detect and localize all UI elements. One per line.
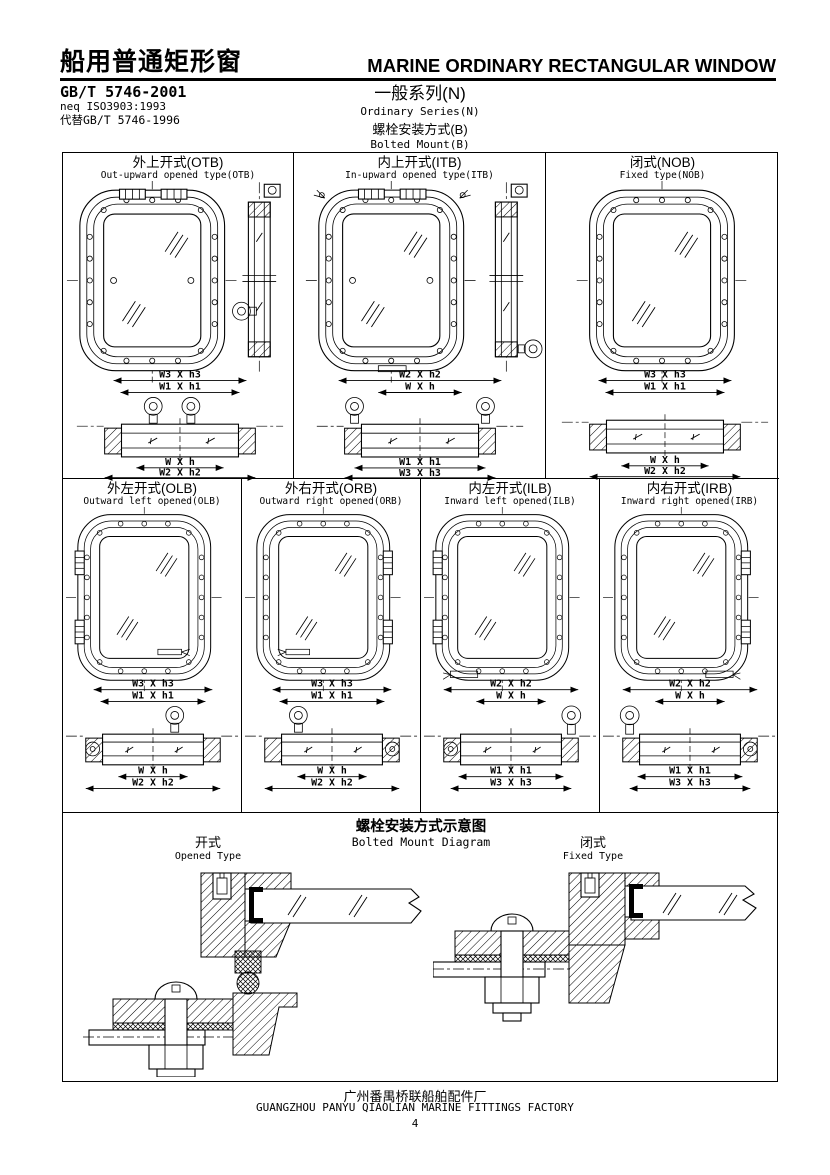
opened-type-label-cn: 开式 [133,835,283,851]
svg-text:W X h: W X h [650,455,680,466]
svg-text:W3 X h3: W3 X h3 [399,468,441,479]
otb-side-section [232,182,280,374]
cell-nob: 闭式(NOB) Fixed type(NOB) W3 X h3 W1 X h1 … [546,153,779,479]
svg-text:W2 X h2: W2 X h2 [399,370,441,381]
svg-text:W2 X h2: W2 X h2 [132,778,174,789]
footer-factory-en: GUANGZHOU PANYU QIAOLIAN MARINE FITTINGS… [0,1101,830,1114]
svg-text:W2 X h2: W2 X h2 [311,778,353,789]
cell-irb-title-cn: 内右开式(IRB) [600,481,779,496]
cell-otb: 外上开式(OTB) Out-upward opened type(OTB) [63,153,294,479]
diagram-title-cn: 螺栓安装方式示意图 [63,819,779,836]
cell-orb-title-en: Outward right opened(ORB) [242,496,420,507]
svg-text:W1 X h1: W1 X h1 [669,766,711,777]
opened-type-section-drawing [83,859,433,1077]
cell-ilb-header: 内左开式(ILB) Inward left opened(ILB) [421,479,599,507]
standard-replaces: 代替GB/T 5746-1996 [60,112,180,128]
cell-itb-title-en: In-upward opened type(ITB) [294,170,545,181]
svg-text:W X h: W X h [165,457,195,468]
svg-text:W X h: W X h [405,382,435,393]
standard-number: GB/T 5746-2001 [60,83,186,101]
svg-text:W X h: W X h [496,691,526,702]
mount-title-en: Bolted Mount(B) [270,138,570,151]
cell-itb: 内上开式(ITB) In-upward opened type(ITB) [294,153,546,479]
header-rule [60,78,776,81]
cell-nob-header: 闭式(NOB) Fixed type(NOB) [546,153,779,181]
cell-nob-title-en: Fixed type(NOB) [546,170,779,181]
fixed-type-section-drawing [433,859,763,1077]
cell-orb-title-cn: 外右开式(ORB) [242,481,420,496]
cell-irb: 内右开式(IRB) Inward right opened(IRB) W2 X … [600,479,779,813]
orb-drawing: W3 X h3 W1 X h1 W X h W2 X h2 [243,507,420,813]
cell-otb-title-en: Out-upward opened type(OTB) [63,170,293,181]
itb-front-view [305,181,476,383]
otb-front-view [66,181,237,383]
olb-drawing: W3 X h3 W1 X h1 W X h W2 X h2 [64,507,241,813]
series-title-en: Ordinary Series(N) [270,104,570,119]
orb-cross-section: W3 X h3 W1 X h1 W X h W2 X h2 [244,679,418,789]
cell-orb-header: 外右开式(ORB) Outward right opened(ORB) [242,479,420,507]
svg-text:W X h: W X h [675,691,705,702]
cell-olb-header: 外左开式(OLB) Outward left opened(OLB) [63,479,241,507]
cell-olb-title-en: Outward left opened(OLB) [63,496,241,507]
svg-text:W2 X h2: W2 X h2 [669,679,711,690]
drawing-table: 外上开式(OTB) Out-upward opened type(OTB) [62,152,778,1082]
svg-text:W1 X h1: W1 X h1 [159,381,201,392]
cell-irb-header: 内右开式(IRB) Inward right opened(IRB) [600,479,779,507]
svg-text:W2 X h2: W2 X h2 [644,466,686,477]
nob-cross-section: W3 X h3 W1 X h1 W X h W2 X h2 [562,370,768,477]
ilb-cross-section: W2 X h2 W X h W1 X h1 W3 X h3 [423,679,597,789]
svg-text:W3 X h3: W3 X h3 [132,679,174,690]
itb-drawing: W2 X h2 W X h W1 X h1 W3 X h3 [295,181,545,481]
svg-text:W1 X h1: W1 X h1 [132,691,174,702]
nob-front-view [577,181,748,383]
itb-cross-section: W2 X h2 W X h W1 X h1 W3 X h3 [316,370,522,479]
cell-ilb: 内左开式(ILB) Inward left opened(ILB) W2 X h… [421,479,600,813]
cell-orb: 外右开式(ORB) Outward right opened(ORB) W3 X… [242,479,421,813]
svg-text:W3 X h3: W3 X h3 [644,370,686,381]
page-number: 4 [0,1117,830,1130]
svg-text:W3 X h3: W3 X h3 [669,778,711,789]
olb-cross-section: W3 X h3 W1 X h1 W X h W2 X h2 [65,679,239,789]
cell-nob-title-cn: 闭式(NOB) [546,155,779,170]
ilb-front-view [424,507,580,691]
ilb-drawing: W2 X h2 W X h W1 X h1 W3 X h3 [422,507,599,813]
cell-itb-title-cn: 内上开式(ITB) [294,155,545,170]
irb-front-view [603,507,759,691]
cell-irb-title-en: Inward right opened(IRB) [600,496,779,507]
svg-text:W X h: W X h [317,766,347,777]
fixed-type-label-cn: 闭式 [518,835,668,851]
svg-text:W1 X h1: W1 X h1 [644,381,686,392]
page-title-cn: 船用普通矩形窗 [60,42,242,78]
cell-olb: 外左开式(OLB) Outward left opened(OLB) W3 X … [63,479,242,813]
svg-text:W3 X h3: W3 X h3 [159,370,201,381]
svg-text:W1 X h1: W1 X h1 [490,766,532,777]
svg-text:W X h: W X h [138,766,168,777]
page-title-en: MARINE ORDINARY RECTANGULAR WINDOW [367,55,776,77]
nob-drawing: W3 X h3 W1 X h1 W X h W2 X h2 [547,181,778,481]
cell-itb-header: 内上开式(ITB) In-upward opened type(ITB) [294,153,545,181]
cell-otb-title-cn: 外上开式(OTB) [63,155,293,170]
series-block: 一般系列(N) Ordinary Series(N) 螺栓安装方式(B) Bol… [270,84,570,151]
cell-ilb-title-cn: 内左开式(ILB) [421,481,599,496]
document-page: 船用普通矩形窗 MARINE ORDINARY RECTANGULAR WIND… [0,0,830,1175]
orb-front-view [245,507,401,691]
mount-title-cn: 螺栓安装方式(B) [270,122,570,138]
svg-text:W2 X h2: W2 X h2 [490,679,532,690]
itb-side-section [489,182,542,374]
cell-olb-title-cn: 外左开式(OLB) [63,481,241,496]
svg-text:W1 X h1: W1 X h1 [311,691,353,702]
cell-otb-header: 外上开式(OTB) Out-upward opened type(OTB) [63,153,293,181]
olb-front-view [66,507,222,691]
cell-ilb-title-en: Inward left opened(ILB) [421,496,599,507]
otb-drawing: W3 X h3 W1 X h1 W X h W2 X h2 [64,181,293,481]
irb-cross-section: W2 X h2 W X h W1 X h1 W3 X h3 [603,679,777,789]
svg-text:W3 X h3: W3 X h3 [311,679,353,690]
svg-text:W1 X h1: W1 X h1 [399,457,441,468]
otb-cross-section: W3 X h3 W1 X h1 W X h W2 X h2 [76,370,282,479]
bolted-mount-diagram-cell: 螺栓安装方式示意图 Bolted Mount Diagram 开式 Opened… [63,813,779,1081]
svg-text:W3 X h3: W3 X h3 [490,778,532,789]
svg-text:W2 X h2: W2 X h2 [159,468,201,479]
irb-drawing: W2 X h2 W X h W1 X h1 W3 X h3 [601,507,778,813]
series-title-cn: 一般系列(N) [270,84,570,104]
